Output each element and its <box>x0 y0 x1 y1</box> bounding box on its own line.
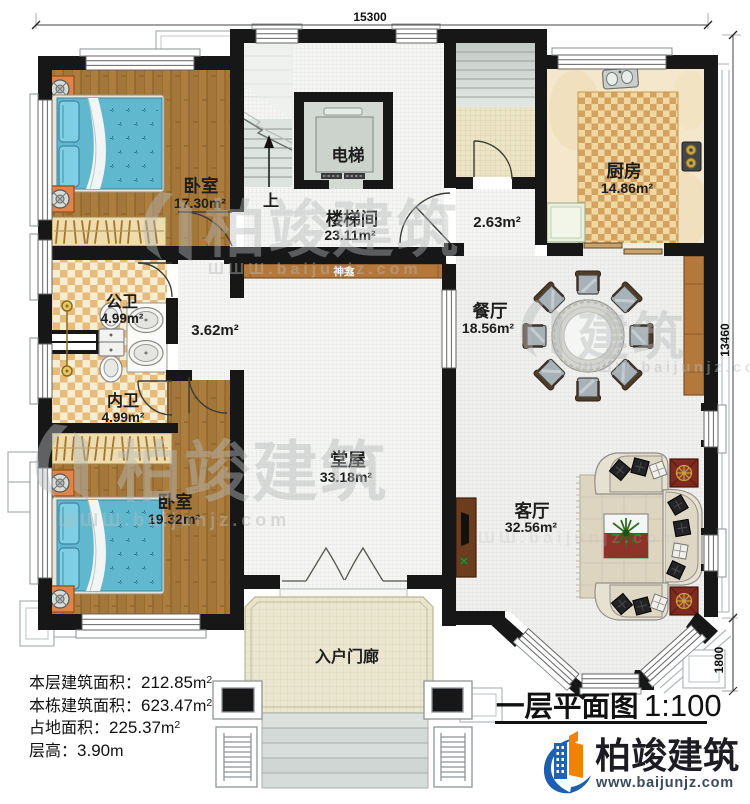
svg-text:3.62m²: 3.62m² <box>191 322 239 339</box>
svg-text:柏竣建筑: 柏竣建筑 <box>204 196 460 265</box>
svg-text:1:100: 1:100 <box>644 688 722 723</box>
svg-text:内卫: 内卫 <box>107 391 139 410</box>
svg-text:占地面积：225.37m2: 占地面积：225.37m2 <box>29 718 180 737</box>
svg-text:柏竣建筑: 柏竣建筑 <box>116 435 388 509</box>
svg-text:本层建筑面积：212.85m2: 本层建筑面积：212.85m2 <box>29 673 212 692</box>
svg-text:层高：3.90m: 层高：3.90m <box>29 741 123 760</box>
svg-text:入户门廊: 入户门廊 <box>315 647 379 666</box>
svg-text:厨房: 厨房 <box>607 161 642 181</box>
svg-text:ШШШ.baijunjz.com: ШШШ.baijunjz.com <box>58 510 290 530</box>
svg-text:柏竣建筑: 柏竣建筑 <box>595 735 739 776</box>
svg-text:卧室: 卧室 <box>184 176 219 196</box>
svg-text:4.99m²: 4.99m² <box>102 410 145 425</box>
svg-text:1800: 1800 <box>712 646 726 673</box>
svg-text:一层平面图: 一层平面图 <box>496 691 639 723</box>
svg-text:2.63m²: 2.63m² <box>473 214 521 231</box>
svg-text:4.99m²: 4.99m² <box>101 311 144 326</box>
svg-text:客厅: 客厅 <box>514 501 550 521</box>
svg-text:本栋建筑面积：623.47m2: 本栋建筑面积：623.47m2 <box>29 696 212 715</box>
svg-text:公卫: 公卫 <box>106 293 138 311</box>
svg-text:14.86m²: 14.86m² <box>601 180 653 196</box>
svg-text:18.56m²: 18.56m² <box>462 320 514 336</box>
svg-text:餐厅: 餐厅 <box>473 301 508 321</box>
svg-text:www.baijunjz.com: www.baijunjz.com <box>595 775 734 791</box>
svg-text:ШШ.baijunjz.com: ШШ.baijunjz.com <box>478 528 680 547</box>
svg-text:ШШШ.baijunjz.com: ШШШ.baijunjz.com <box>208 261 422 278</box>
svg-text:13460: 13460 <box>718 323 732 357</box>
svg-text:电梯: 电梯 <box>332 145 365 165</box>
svg-text:15300: 15300 <box>353 10 387 24</box>
svg-text:ШШШ.baijunjz.com: ШШШ.baijunjz.com <box>578 359 750 376</box>
